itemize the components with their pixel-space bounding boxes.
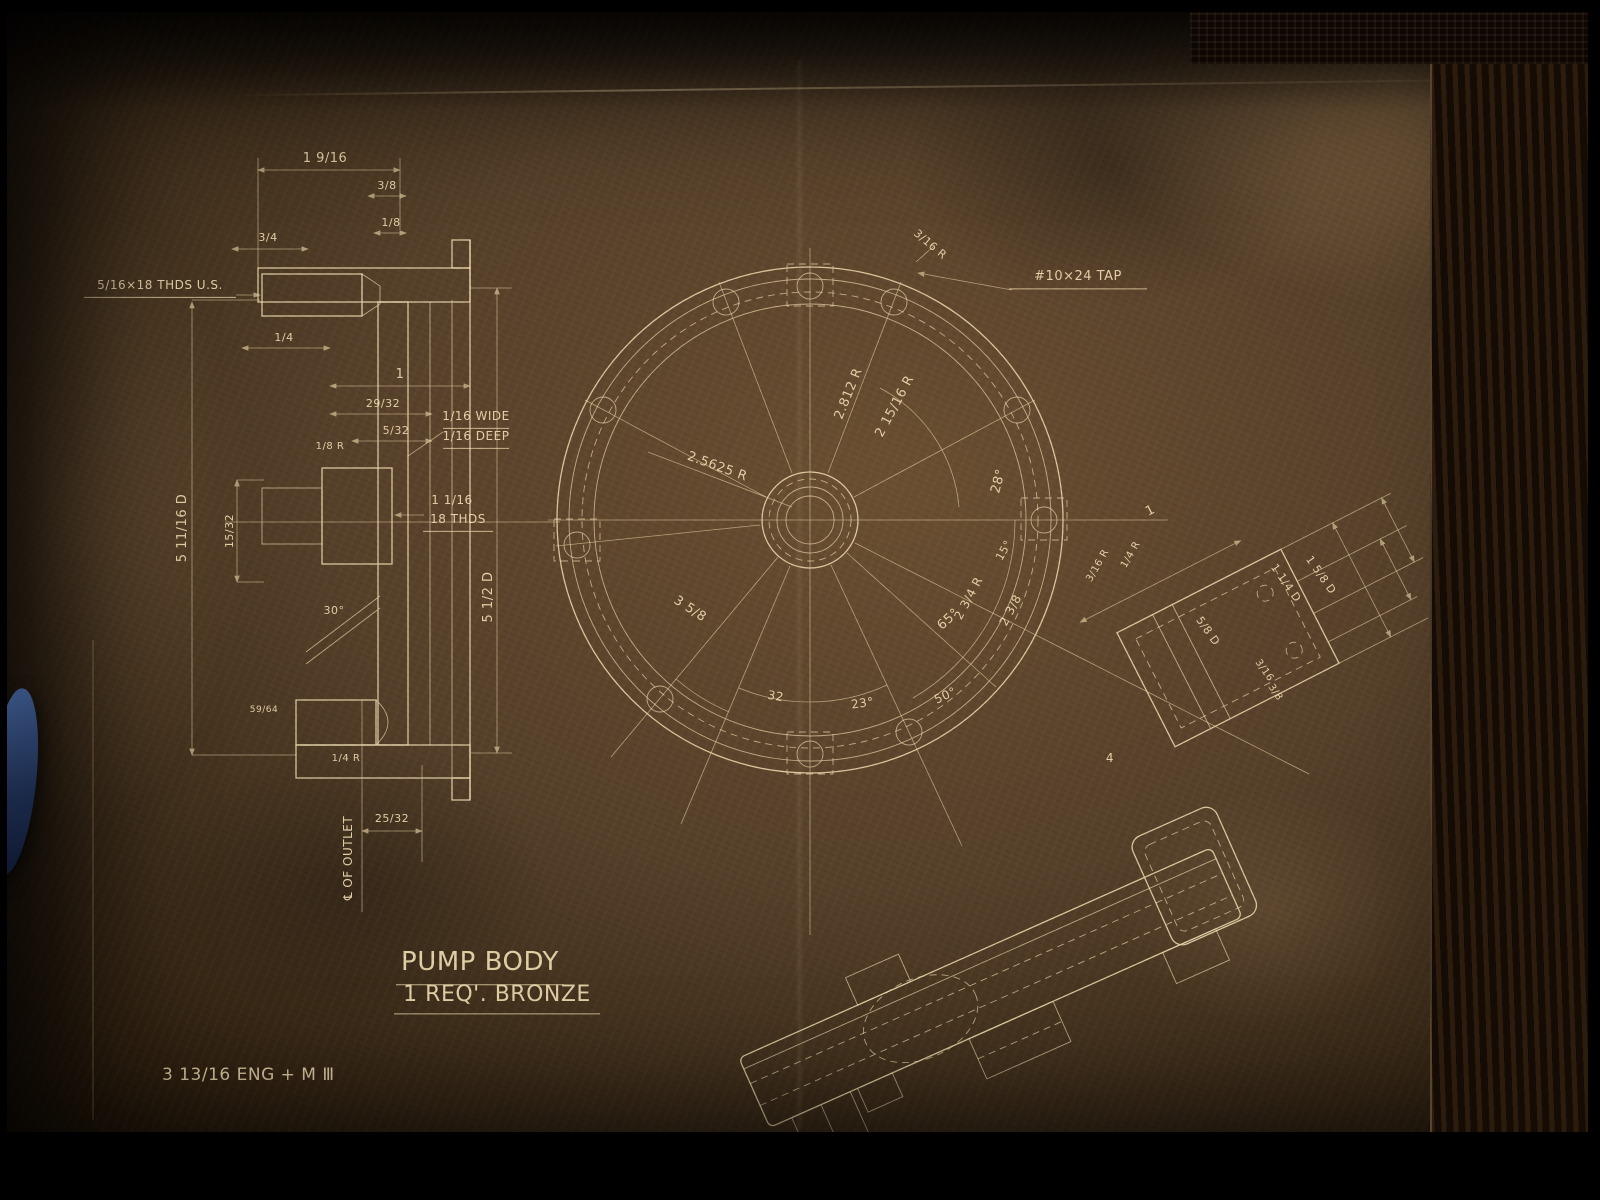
photo-frame-bottom [0,1132,1600,1200]
footer-note: 3 13/16 ENG + M Ⅲ [162,1065,335,1085]
photo-frame-left [0,0,7,1200]
dimension-label: 2 3/8 [996,592,1024,628]
dimension-label: 1 9/16 [303,151,348,166]
photo-frame-top [0,0,1600,12]
tap-callout: #10×24 TAP [1034,269,1122,284]
section-view [225,240,560,800]
outlet-side-view [723,803,1279,1169]
dimension-label: 30° [324,604,345,617]
outlet-flange-plan [1080,470,1448,759]
dimension-label: 59/64 [250,705,278,715]
blueprint-photo: { "photo": { "kind": "photograph of vint… [0,0,1600,1200]
thread-callout-top-boss: 5/16×18 THDS U.S. [97,278,223,292]
dimension-label: 3/16 [1253,657,1276,683]
dimension-label: 15/32 [223,514,236,548]
plan-view-circle [548,246,1309,935]
dimension-label: 1/8 [381,216,400,229]
drawing-title: PUMP BODY [401,947,559,977]
dimension-label: 1 5/8 D [1303,553,1339,596]
dimension-label: 1/8 R [316,441,345,452]
photo-frame-right [1588,0,1600,1200]
groove-callout: 1/16 WIDE [442,409,510,423]
groove-callout: 1/16 DEEP [443,429,510,443]
dimension-label: 3/8 [377,179,396,192]
dimension-label: 1/4 [274,331,293,344]
overall-depth-dim: 5 11/16 D [175,494,190,563]
dimension-label: 1 [1143,502,1158,519]
dimension-label: 5/32 [383,424,410,437]
dimension-label: 3/4 [258,231,277,244]
dimension-label: 50° [932,684,959,706]
dimension-label: 25/32 [375,812,409,825]
radius-dim: 2.5625 R [685,449,749,485]
dimension-label: 1/4 R [1119,540,1143,570]
dimension-label: 4 [1106,751,1114,765]
dimension-label: 29/32 [366,397,400,410]
blueprint-drawing: 1 9/163/81/83/45/16×18 THDS U.S.1/4129/3… [0,0,1600,1200]
outlet-centerline-label: ℄ OF OUTLET [341,816,355,902]
table-edge-right [1430,0,1588,1200]
dimension-label: 1 1/16 [431,493,472,507]
dimension-label: 28° [988,467,1009,495]
dimension-label: 23° [850,695,875,712]
overall-height-dim: 5 1/2 D [481,572,496,623]
dimension-label: 5/8 D [1193,614,1222,648]
dimension-label: 3/16 R [911,227,949,262]
dimension-label: 32 [766,688,784,705]
section-dimensions [192,158,512,912]
dimension-label: 3/16 R [1084,548,1111,584]
dimension-label: 1 [396,367,405,382]
radius-dim: 3 5/8 [671,593,709,625]
drawing-labels: 1 9/163/81/83/45/16×18 THDS U.S.1/4129/3… [84,151,1339,1085]
dimension-label: 1/4 R [332,753,361,764]
radius-dim: 2 15/16 R [872,373,917,440]
thread-callout-center-bore: 18 THDS [430,512,486,526]
drawing-subtitle: 1 REQ'. BRONZE [403,982,591,1007]
radius-dim: 2.812 R [832,366,866,422]
